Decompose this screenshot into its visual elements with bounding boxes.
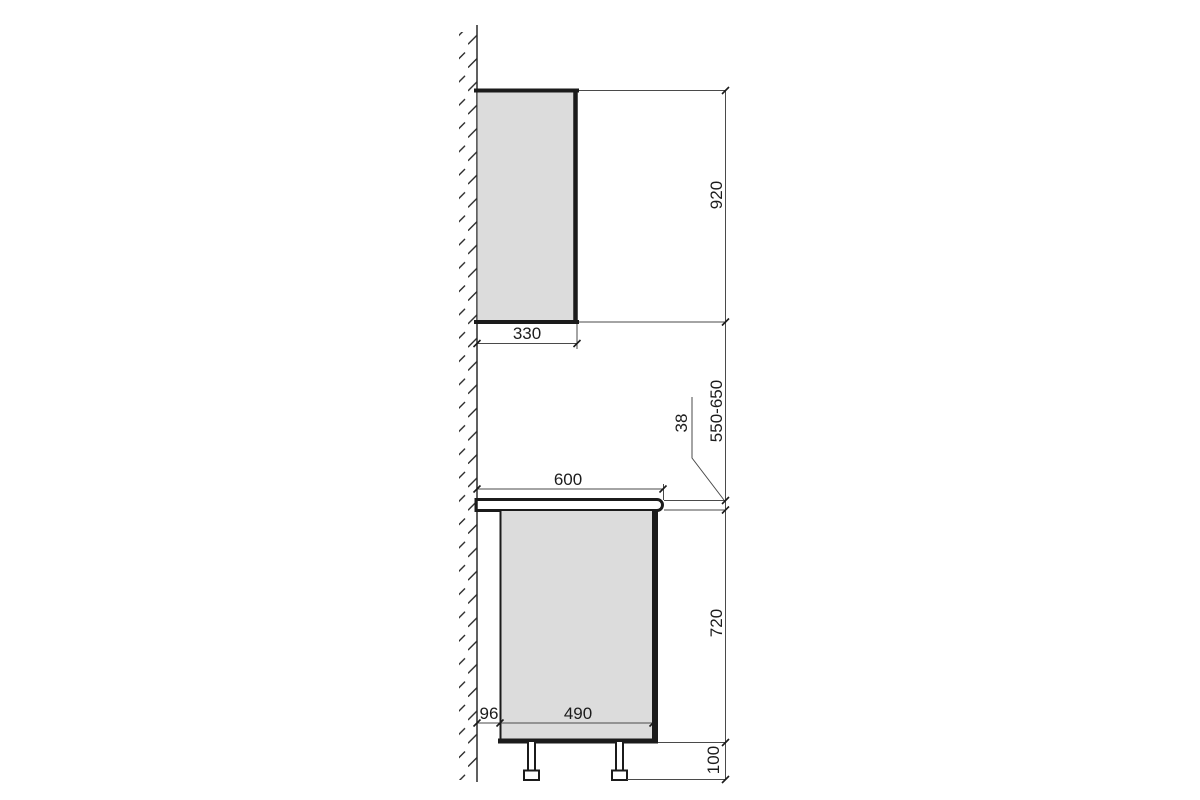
wall-cabinet (474, 89, 579, 325)
dim-label-wall-clearance: 96 (480, 704, 499, 723)
wall-hatching (459, 32, 477, 780)
cabinet-section-drawing: 330 600 96 490 920 550-650 38 720 100 (0, 0, 1200, 800)
dim-label-countertop-depth: 600 (554, 470, 582, 489)
drawing-page: 330 600 96 490 920 550-650 38 720 100 (0, 0, 1200, 800)
right-leg-foot (612, 771, 627, 781)
dim-label-base-cabinet-height: 720 (707, 609, 726, 637)
dim-label-leg-height: 100 (704, 746, 723, 774)
dim-label-base-cabinet-depth: 490 (564, 704, 592, 723)
left-leg-foot (524, 771, 539, 781)
dim-label-wall-cabinet-height: 920 (707, 181, 726, 209)
left-leg-stem (528, 741, 535, 771)
countertop (476, 500, 663, 511)
wall-cabinet-body (478, 92, 574, 320)
cabinet-legs (524, 741, 627, 780)
dim-label-wall-cabinet-depth: 330 (513, 324, 541, 343)
dim-label-countertop-thickness: 38 (672, 414, 691, 433)
dim-label-counter-gap: 550-650 (707, 380, 726, 442)
right-leg-stem (616, 741, 623, 771)
